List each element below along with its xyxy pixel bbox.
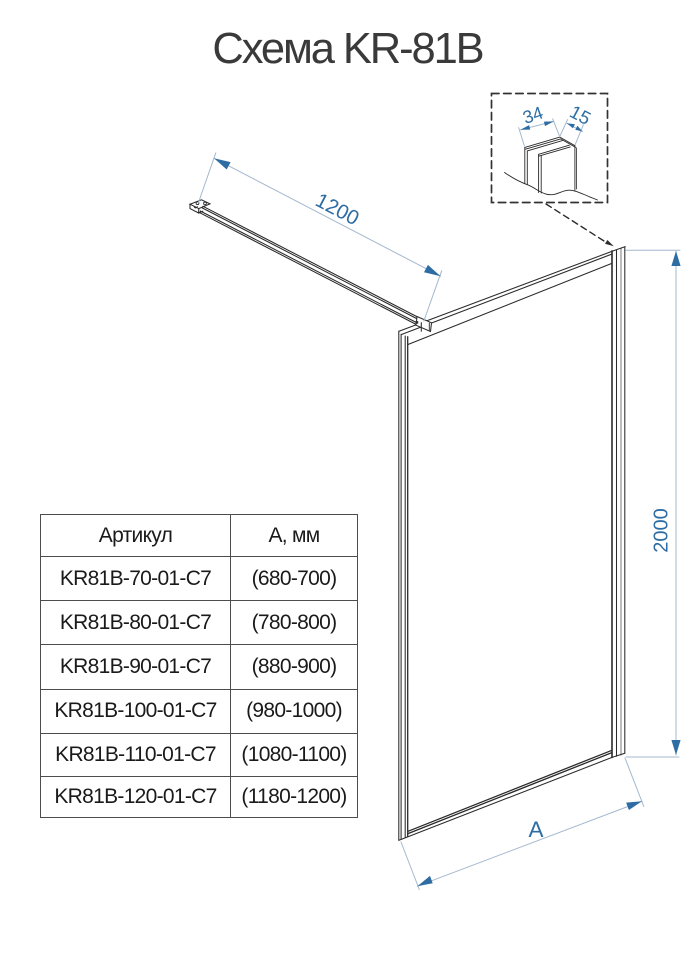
svg-text:A: A [528, 817, 543, 842]
svg-text:1200: 1200 [312, 189, 363, 230]
svg-text:2000: 2000 [650, 508, 672, 553]
